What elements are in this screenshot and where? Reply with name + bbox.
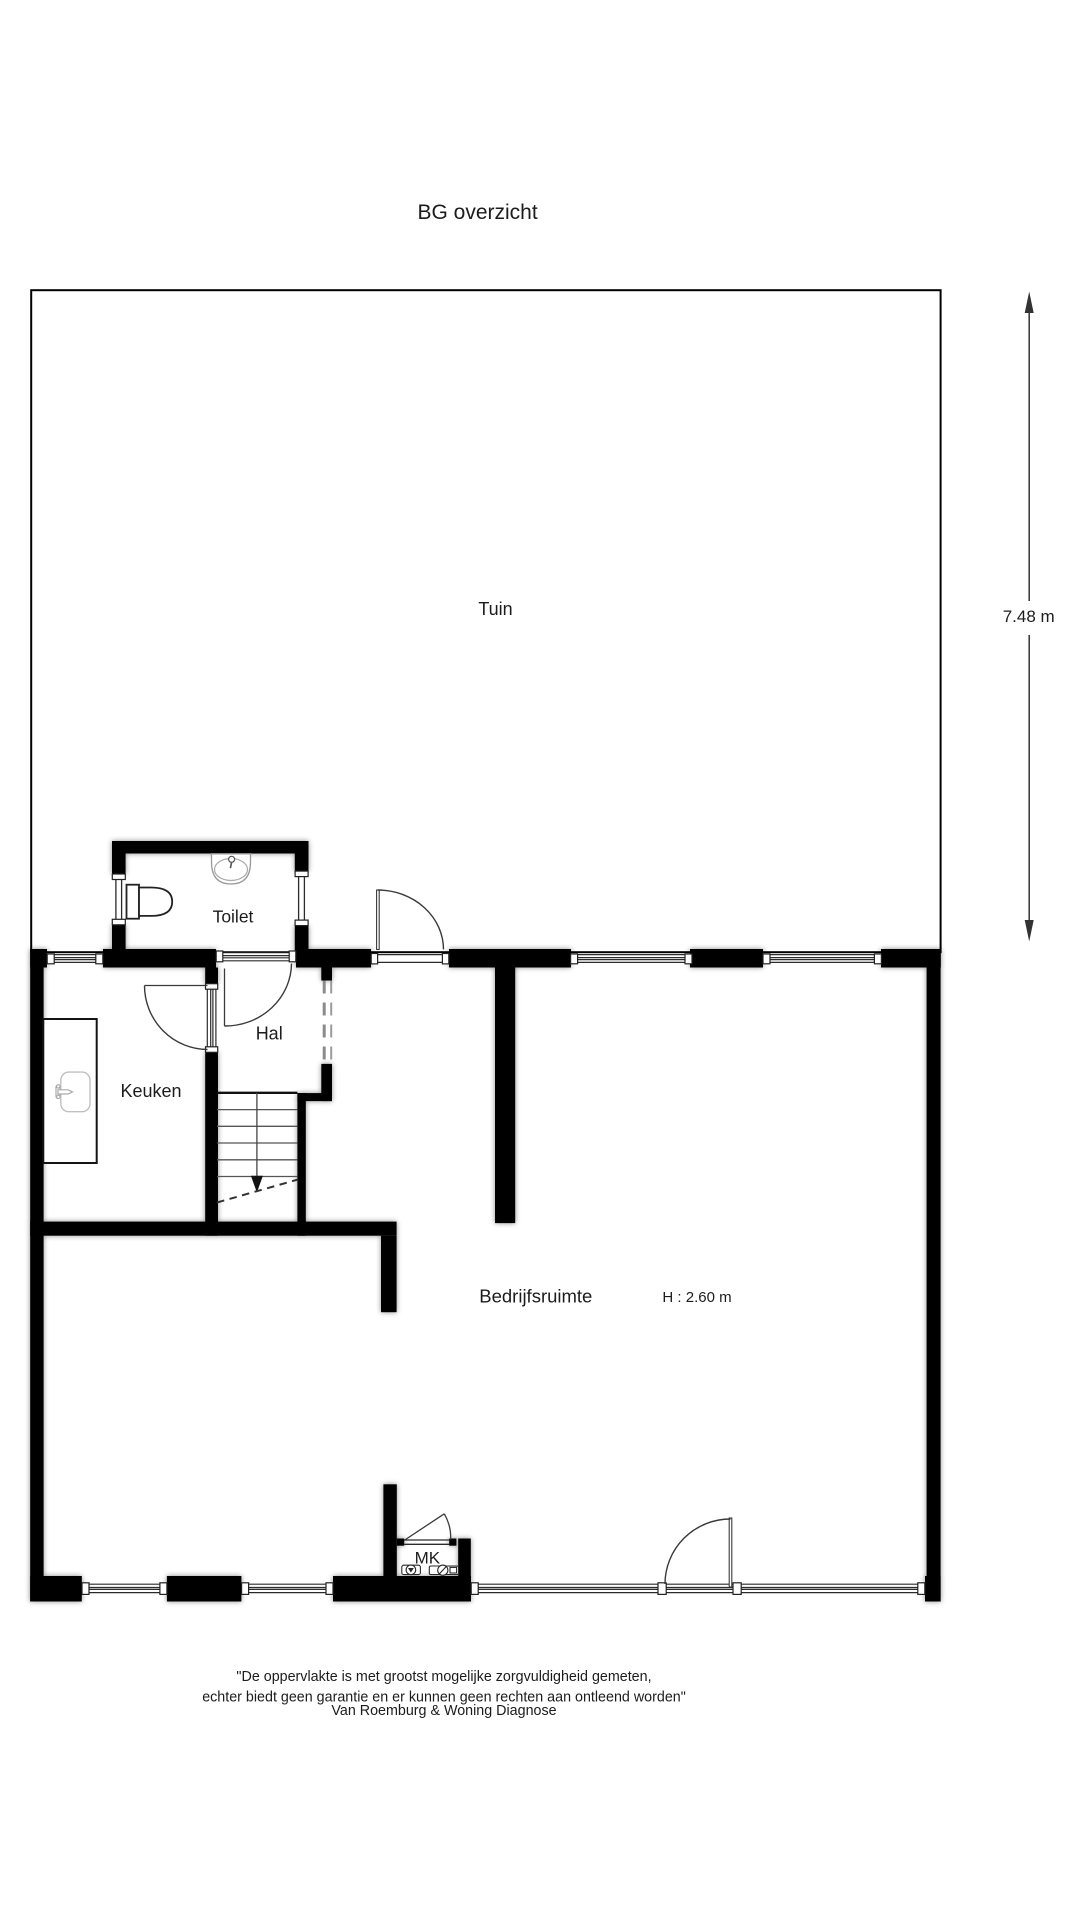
svg-text:Hal: Hal [256,1024,283,1044]
svg-text:Van Roemburg & Woning Diagnose: Van Roemburg & Woning Diagnose [331,1703,556,1719]
svg-text:Toilet: Toilet [213,907,254,927]
svg-text:Keuken: Keuken [120,1081,181,1101]
svg-text:Tuin: Tuin [478,599,512,619]
svg-text:Bedrijfsruimte: Bedrijfsruimte [479,1286,592,1307]
svg-text:"De oppervlakte is met grootst: "De oppervlakte is met grootst mogelijke… [236,1669,651,1685]
svg-text:H : 2.60 m: H : 2.60 m [662,1289,731,1306]
svg-text:7.48 m: 7.48 m [1003,607,1055,626]
svg-text:MK: MK [415,1549,441,1568]
svg-text:BG overzicht: BG overzicht [417,201,537,224]
